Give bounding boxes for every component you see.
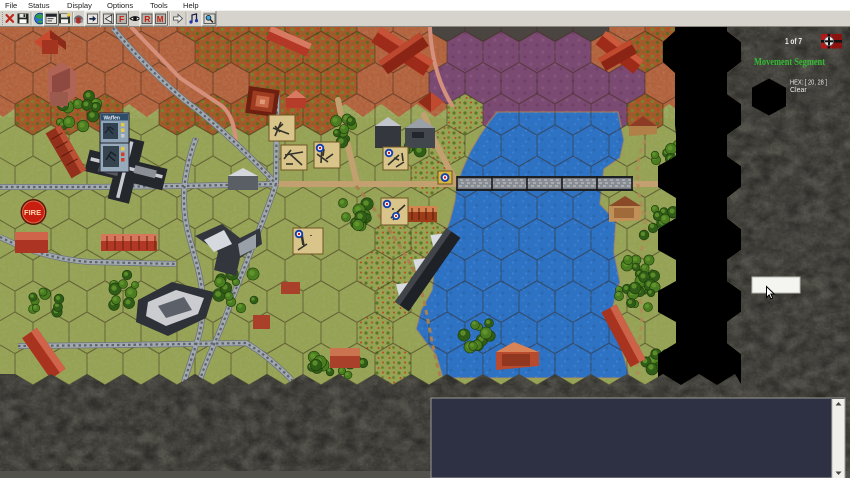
svg-text:FIRE: FIRE bbox=[24, 208, 41, 217]
svg-text:HEX: [ 20, 28 ]: HEX: [ 20, 28 ] bbox=[790, 80, 827, 87]
svg-text:F: F bbox=[119, 14, 124, 24]
svg-text:Display: Display bbox=[67, 1, 92, 10]
svg-text:Tools: Tools bbox=[150, 1, 168, 10]
svg-text:Status: Status bbox=[28, 1, 50, 10]
svg-text:M: M bbox=[157, 15, 164, 24]
svg-text:Clear: Clear bbox=[790, 87, 807, 94]
svg-text:Movement Segment: Movement Segment bbox=[754, 57, 826, 68]
svg-text:1 of 7: 1 of 7 bbox=[785, 36, 802, 46]
svg-text:Help: Help bbox=[183, 1, 199, 10]
svg-text:Options: Options bbox=[107, 1, 133, 10]
svg-text:R: R bbox=[144, 14, 150, 24]
svg-text:File: File bbox=[5, 1, 17, 10]
svg-text:Waffen: Waffen bbox=[104, 116, 120, 122]
